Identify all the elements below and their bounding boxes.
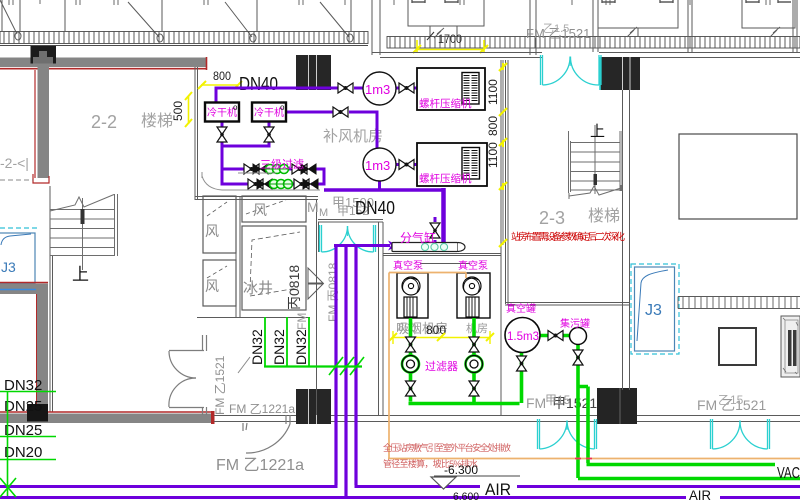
svg-text:真空罐: 真空罐 [506, 302, 536, 315]
svg-text:o: o [233, 103, 238, 112]
svg-text:1100: 1100 [486, 79, 500, 105]
svg-text:集污罐: 集污罐 [560, 317, 590, 330]
svg-text:J3: J3 [645, 302, 662, 319]
svg-text:楼梯: 楼梯 [588, 207, 620, 225]
svg-text:DN40: DN40 [355, 198, 395, 218]
svg-text:2-2: 2-2 [91, 112, 117, 132]
svg-text:M: M [307, 199, 319, 215]
svg-text:过滤器: 过滤器 [425, 360, 458, 373]
svg-text:补风机房: 补风机房 [323, 128, 383, 145]
svg-text:DN25: DN25 [4, 398, 42, 415]
svg-text:2-3: 2-3 [539, 208, 565, 228]
svg-text:甲15: 甲15 [545, 393, 571, 407]
svg-text:站房布置需设备参数确定后二次深化: 站房布置需设备参数确定后二次深化 [511, 231, 625, 243]
svg-text:500: 500 [171, 101, 185, 121]
svg-text:FM: FM [295, 313, 309, 330]
svg-text:M: M [319, 207, 328, 219]
svg-text:上: 上 [590, 123, 605, 140]
svg-text:FM 乙1221a: FM 乙1221a [229, 402, 295, 416]
svg-text:VAC: VAC [777, 465, 800, 482]
svg-text:1100: 1100 [486, 142, 500, 168]
svg-text:风: 风 [205, 223, 219, 239]
svg-text:风: 风 [205, 278, 219, 294]
svg-text:800: 800 [213, 69, 231, 83]
svg-text:1.5m3: 1.5m3 [507, 331, 539, 343]
svg-text:J3: J3 [1, 259, 16, 275]
svg-text:风: 风 [253, 202, 267, 218]
svg-text:全压站房敷气引至室外平台安全处排放: 全压站房敷气引至室外平台安全处排放 [383, 442, 511, 453]
svg-text:真空泵: 真空泵 [393, 259, 423, 272]
svg-text:真空泵: 真空泵 [458, 259, 488, 272]
svg-text:FM: FM [526, 395, 546, 411]
svg-text:o: o [280, 103, 285, 112]
svg-text:DN40: DN40 [239, 74, 278, 94]
svg-text:800: 800 [398, 322, 416, 334]
svg-text:-6.300: -6.300 [444, 463, 478, 477]
svg-text:-2-<|: -2-<| [0, 155, 29, 171]
svg-text:DN32: DN32 [249, 329, 265, 365]
svg-text:DN32: DN32 [271, 329, 287, 365]
svg-text:螺杆压缩机: 螺杆压缩机 [419, 172, 472, 185]
svg-text:机房: 机房 [466, 321, 488, 335]
svg-text:1m3: 1m3 [365, 82, 390, 97]
svg-text:1m3: 1m3 [365, 158, 390, 173]
svg-text:冰井: 冰井 [243, 280, 273, 297]
svg-text:6.600: 6.600 [453, 491, 479, 500]
svg-text:楼梯: 楼梯 [141, 112, 173, 130]
svg-text:分气缸: 分气缸 [400, 230, 436, 245]
svg-text:三级过滤: 三级过滤 [260, 158, 304, 171]
svg-text:AIR: AIR [485, 480, 511, 499]
svg-text:上: 上 [72, 265, 89, 284]
svg-text:丙0818: 丙0818 [286, 265, 302, 310]
svg-text:乙15: 乙15 [718, 393, 744, 407]
svg-text:1700: 1700 [438, 32, 462, 46]
svg-text:FM 乙1521: FM 乙1521 [213, 355, 227, 415]
svg-text:FM 乙1221a: FM 乙1221a [216, 457, 304, 474]
svg-text:DN20: DN20 [4, 444, 42, 461]
svg-text:乙1.5: 乙1.5 [543, 22, 569, 35]
svg-text:AIR: AIR [689, 487, 711, 500]
svg-text:DN32: DN32 [293, 329, 309, 365]
svg-text:800: 800 [486, 116, 500, 136]
svg-text:螺杆压缩机: 螺杆压缩机 [419, 97, 472, 110]
svg-text:FM 丙0818: FM 丙0818 [326, 262, 340, 322]
